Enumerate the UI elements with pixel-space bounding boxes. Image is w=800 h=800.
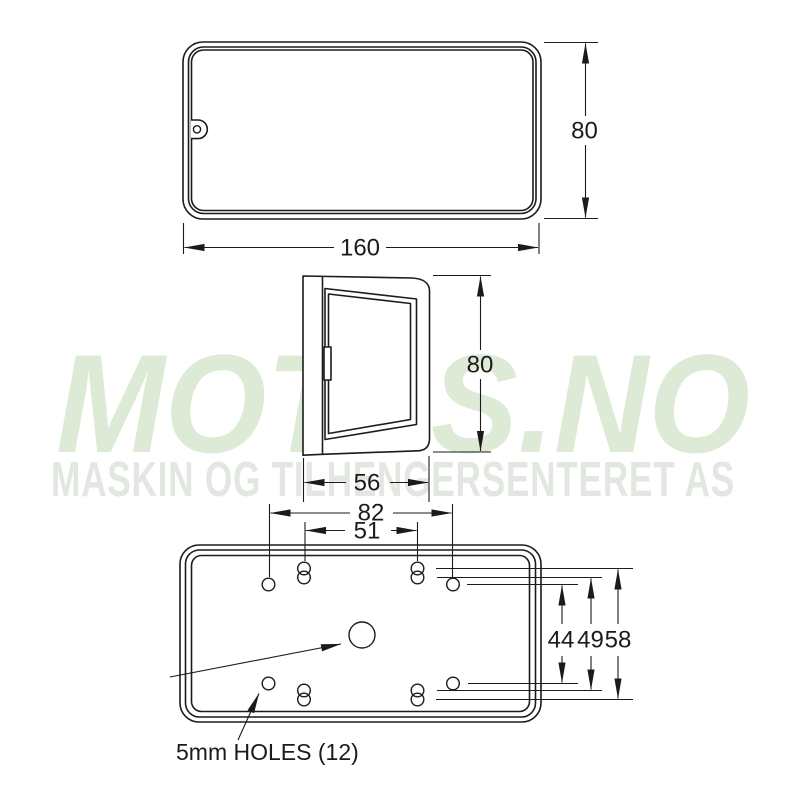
dim-label-49: 49 [577, 627, 604, 654]
side-view-door-outer [325, 289, 417, 440]
holes-note-label: 5mm HOLES (12) [176, 739, 359, 765]
back-height-dimension-44: 44 [548, 586, 575, 683]
technical-drawing: MOTAS.NO MASKIN OG TILHENGERSENTERET AS … [0, 0, 800, 800]
back-view-outer-outline [180, 545, 541, 722]
side-view [303, 276, 430, 455]
back-height-dimension-58: 58 [605, 570, 632, 699]
front-view [183, 42, 541, 219]
dim-label-44: 44 [548, 627, 575, 654]
dim-label-side-depth: 56 [354, 470, 381, 497]
front-width-dimension: 160 [184, 223, 540, 262]
dim-label-side-height: 80 [467, 352, 494, 379]
front-height-dimension: 80 [544, 43, 598, 219]
drawing-page: MOTAS.NO MASKIN OG TILHENGERSENTERET AS … [0, 0, 800, 800]
side-view-latch [324, 347, 331, 380]
dim-label-51: 51 [354, 518, 381, 545]
watermark-subtitle: MASKIN OG TILHENGERSENTERET AS [51, 453, 735, 507]
back-view [180, 545, 541, 722]
back-height-dimension-49: 49 [577, 579, 604, 690]
dim-label-58: 58 [605, 627, 632, 654]
front-view-outer-outline [183, 42, 541, 219]
dim-label-front-height: 80 [571, 118, 598, 145]
dim-label-front-width: 160 [340, 235, 380, 262]
